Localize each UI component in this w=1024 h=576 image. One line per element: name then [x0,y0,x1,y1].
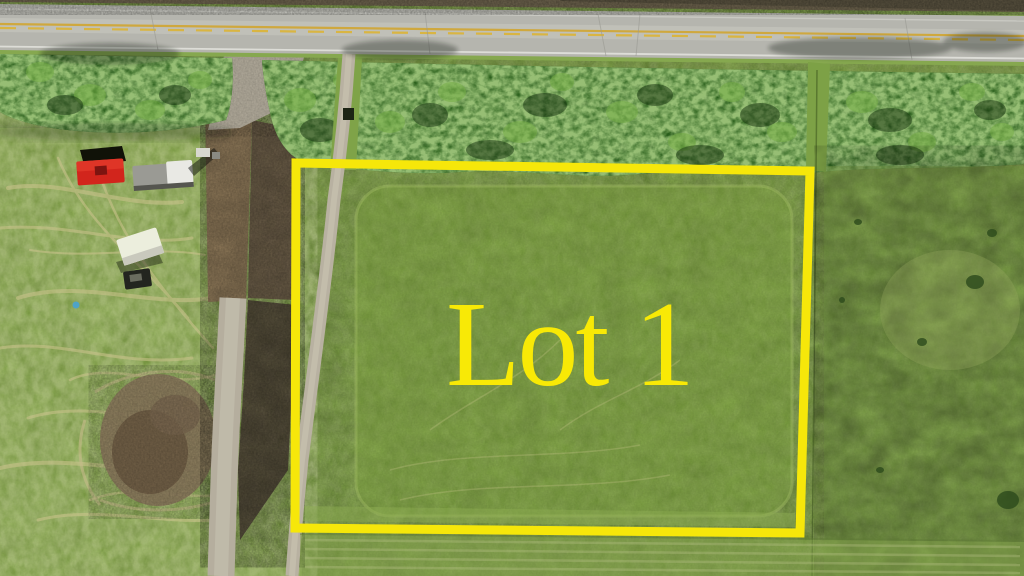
tree-band-shadow [0,123,235,141]
atv [123,268,152,290]
blue-barrel [73,302,80,309]
equipment-small-2 [212,152,220,159]
lot-label: Lot 1 [446,284,726,406]
top-soil-strip [0,0,1024,14]
driveway-gate [343,108,354,120]
mud-patch [80,371,225,512]
right-pasture [824,166,1024,576]
equipment-small [196,148,210,157]
mown-rows-field [300,534,1024,576]
red-truck [76,158,125,185]
aerial-lot-photo: Lot 1 [0,0,1024,576]
